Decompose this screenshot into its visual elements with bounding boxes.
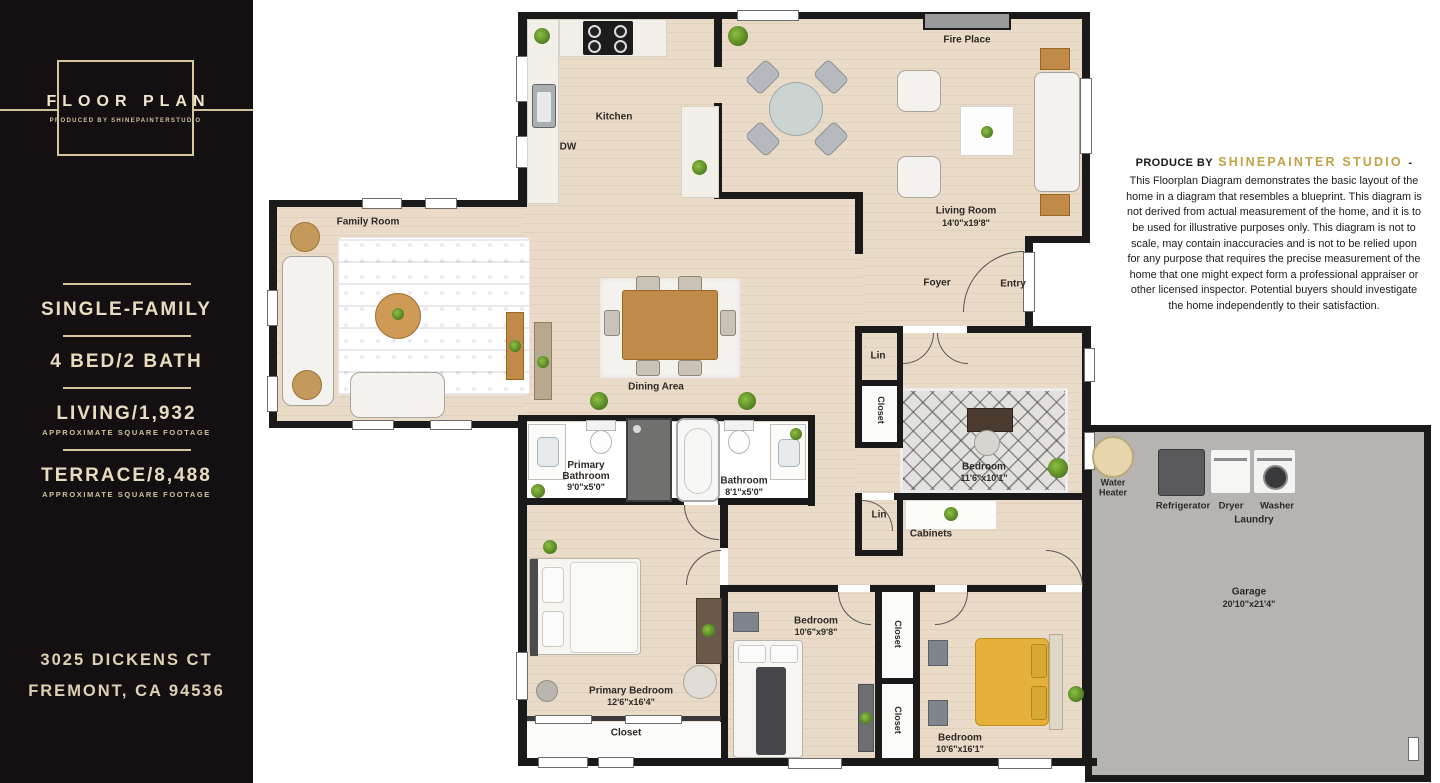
window <box>267 290 278 326</box>
primary-bathroom-label: Primary Bathroom 9'0"x5'0" <box>562 460 609 492</box>
nightstand <box>928 700 948 726</box>
washer-label: Washer <box>1260 501 1294 512</box>
sofa <box>1034 72 1080 192</box>
door-gap <box>838 585 870 592</box>
family-room-label: Family Room <box>337 217 400 228</box>
dining-area-label: Dining Area <box>628 382 684 393</box>
window <box>1080 78 1092 154</box>
wall <box>720 585 1090 592</box>
bathtub <box>676 418 720 502</box>
vanity-sink <box>528 424 566 480</box>
toilet <box>586 420 616 456</box>
side-table <box>1040 48 1070 70</box>
window <box>1084 348 1095 382</box>
armchair <box>897 70 941 112</box>
plant <box>537 356 549 368</box>
wall <box>913 585 920 765</box>
side-table <box>1040 194 1070 216</box>
water-heater-label: Water Heater <box>1090 478 1136 499</box>
desk-chair <box>974 430 1000 456</box>
plant <box>543 540 557 554</box>
nightstand <box>733 612 759 632</box>
plant <box>981 126 993 138</box>
wall <box>269 421 527 428</box>
desk <box>967 408 1013 432</box>
wall <box>855 326 862 448</box>
window <box>538 757 588 768</box>
window <box>598 757 634 768</box>
linen-closet-label: Lin <box>871 351 886 362</box>
fireplace-label: Fire Place <box>943 35 990 46</box>
plant <box>944 507 958 521</box>
plant <box>860 712 872 724</box>
closet-slider-door <box>535 715 592 724</box>
bathroom-dims: 8'1"x5'0" <box>725 487 763 497</box>
wall <box>897 500 903 555</box>
bed <box>733 640 803 758</box>
wall <box>855 500 862 555</box>
plant <box>392 308 404 320</box>
plant <box>534 28 550 44</box>
wall <box>714 12 722 67</box>
wall <box>720 498 728 548</box>
primary-bedroom-dims: 12'6"x16'4" <box>607 697 655 707</box>
laundry-label: Laundry <box>1234 515 1273 526</box>
armchair <box>897 156 941 198</box>
floor-plan: Kitchen DW Family Room Fire Place Living… <box>0 0 1440 783</box>
toilet <box>724 420 754 456</box>
wall <box>875 585 882 765</box>
dishwasher-label: DW <box>560 142 577 153</box>
window <box>352 420 394 430</box>
round-side-table <box>290 222 320 252</box>
wall <box>1082 326 1091 766</box>
bedroom2-label: Bedroom <box>794 616 838 627</box>
garage-label: Garage <box>1232 587 1266 598</box>
entry-label: Entry <box>1000 279 1026 290</box>
foyer-label: Foyer <box>923 278 950 289</box>
dining-chair <box>636 360 660 376</box>
primary-closet-label: Closet <box>611 728 642 739</box>
bedroom2-dims: 10'6"x9'8" <box>795 627 838 637</box>
shower <box>626 418 672 502</box>
wall <box>518 12 527 206</box>
wall <box>714 192 862 199</box>
window <box>267 376 278 412</box>
window <box>998 758 1052 769</box>
wall <box>855 550 903 556</box>
closet-label: Closet <box>893 706 903 734</box>
door-gap <box>862 493 894 500</box>
dining-chair <box>678 360 702 376</box>
nightstand <box>928 640 948 666</box>
plant <box>790 428 802 440</box>
living-room-label: Living Room <box>936 206 997 217</box>
water-heater <box>1092 436 1134 478</box>
garage-dims: 20'10"x21'4" <box>1223 599 1276 609</box>
bed <box>529 558 641 655</box>
door-gap <box>903 326 967 333</box>
plant <box>702 624 715 637</box>
kitchen-label: Kitchen <box>596 112 633 123</box>
wall <box>1025 236 1090 243</box>
bed <box>975 634 1063 730</box>
round-side-table <box>292 370 322 400</box>
wall <box>855 326 1090 333</box>
window <box>737 10 799 21</box>
nook-table <box>769 82 823 136</box>
door-gap <box>720 548 728 585</box>
dining-chair <box>720 310 736 336</box>
refrigerator-label: Refrigerator <box>1156 501 1210 512</box>
primary-bedroom-label: Primary Bedroom <box>589 686 673 697</box>
plant <box>1048 458 1068 478</box>
fireplace <box>923 12 1011 30</box>
wall <box>855 192 863 254</box>
living-room-dims: 14'0"x19'8" <box>942 218 990 228</box>
pouf <box>536 680 558 702</box>
plant <box>531 484 545 498</box>
garage-side-door <box>1408 737 1419 761</box>
closet-label: Closet <box>876 396 886 424</box>
sofa <box>350 372 445 418</box>
washer <box>1253 449 1296 494</box>
bedroom3-label: Bedroom <box>938 733 982 744</box>
dining-table <box>622 290 718 360</box>
linen-hall-label: Lin <box>872 510 887 521</box>
window <box>362 198 402 209</box>
plant <box>692 160 707 175</box>
plant <box>509 340 521 352</box>
window <box>430 420 472 430</box>
plant <box>728 26 748 46</box>
wall <box>518 498 527 765</box>
plant <box>1068 686 1084 702</box>
cabinets-label: Cabinets <box>910 529 952 540</box>
kitchen-island <box>681 106 719 198</box>
closet-label: Closet <box>893 620 903 648</box>
refrigerator <box>1158 449 1205 496</box>
window <box>516 652 528 700</box>
plant <box>590 392 608 410</box>
dining-chair <box>604 310 620 336</box>
wall <box>855 442 903 448</box>
bedroom1-label: Bedroom <box>962 462 1006 473</box>
window <box>425 198 457 209</box>
closet-slider-door <box>625 715 682 724</box>
door-gap <box>935 585 967 592</box>
bathroom-label: Bathroom <box>720 476 767 487</box>
window <box>788 758 842 769</box>
entry-porch <box>1032 243 1088 328</box>
bedroom3-dims: 10'6"x16'1" <box>936 744 984 754</box>
plant <box>738 392 756 410</box>
wall <box>808 415 815 506</box>
dryer <box>1210 449 1251 494</box>
bedroom1-dims: 11'6"x10'1" <box>960 473 1007 483</box>
kitchen-sink <box>532 84 556 128</box>
lounge-chair <box>683 665 717 699</box>
dryer-label: Dryer <box>1219 501 1244 512</box>
stove <box>583 21 633 55</box>
wall <box>518 415 527 508</box>
